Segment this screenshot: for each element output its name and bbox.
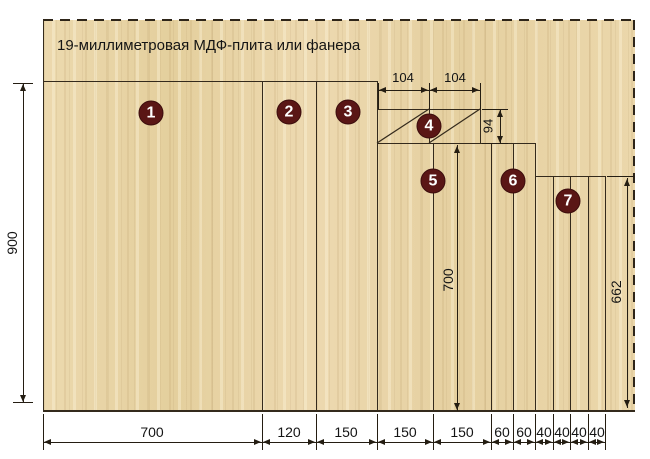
piece-7-badge: 7	[556, 189, 581, 214]
piece-2-badge: 2	[277, 100, 302, 125]
piece-1-outline	[43, 81, 263, 412]
dim-104a-line	[378, 87, 429, 94]
dim-150c-line	[433, 439, 491, 446]
dim-150a-line	[316, 439, 377, 446]
dim-60b-label: 60	[516, 424, 532, 440]
board-right-dashed-edge	[633, 20, 635, 412]
board-title: 19-миллиметровая МДФ-плита или фанера	[57, 37, 360, 54]
dim-900-label: 900	[4, 231, 20, 254]
dim-120-line	[262, 439, 316, 446]
dim-900-line	[20, 83, 27, 403]
piece-3-badge: 3	[336, 100, 361, 125]
piece-2-outline	[262, 81, 317, 412]
piece-7-divider-1	[553, 176, 554, 412]
dim-104b-line	[429, 87, 480, 94]
dim-40a-line	[535, 439, 553, 446]
dim-60a-line	[491, 439, 513, 446]
dim-94-line	[497, 109, 504, 144]
dim-40c-label: 40	[571, 424, 587, 440]
board-top-dashed-edge	[43, 19, 635, 21]
piece-4-badge: 4	[417, 114, 442, 139]
dim-94-bottom-tick	[482, 143, 508, 144]
dim-40a-label: 40	[536, 424, 552, 440]
dim-94-top-tick	[482, 109, 508, 110]
dim-150c-label: 150	[450, 424, 473, 440]
dim-700v-label: 700	[440, 268, 456, 291]
piece-1-badge: 1	[139, 101, 164, 126]
dim-94-label: 94	[481, 119, 496, 133]
dim-104b-label: 104	[444, 70, 466, 85]
dim-40d-label: 40	[589, 424, 605, 440]
dim-60b-line	[513, 439, 535, 446]
piece-3-outline	[316, 81, 378, 412]
dim-662-top-tick	[607, 176, 634, 177]
cutting-diagram: 19-миллиметровая МДФ-плита или фанера 1 …	[0, 0, 650, 459]
dim-40c-line	[570, 439, 588, 446]
dim-662-line	[624, 178, 631, 408]
dim-150a-label: 150	[334, 424, 357, 440]
dim-150b-line	[377, 439, 433, 446]
dim-120-label: 120	[277, 424, 300, 440]
dim-150b-label: 150	[393, 424, 416, 440]
dim-40d-line	[588, 439, 605, 446]
piece-5-badge: 5	[421, 169, 446, 194]
dim-104a-label: 104	[392, 70, 414, 85]
dim-60a-label: 60	[494, 424, 510, 440]
piece-6-badge: 6	[501, 169, 526, 194]
dim-662-label: 662	[608, 280, 624, 303]
dim-700-label: 700	[140, 424, 163, 440]
dim-40b-line	[553, 439, 570, 446]
dim-40b-label: 40	[554, 424, 570, 440]
piece-7-divider-3	[588, 176, 589, 412]
dim-700-line	[43, 439, 262, 446]
dim-104-ext-right	[480, 83, 481, 109]
